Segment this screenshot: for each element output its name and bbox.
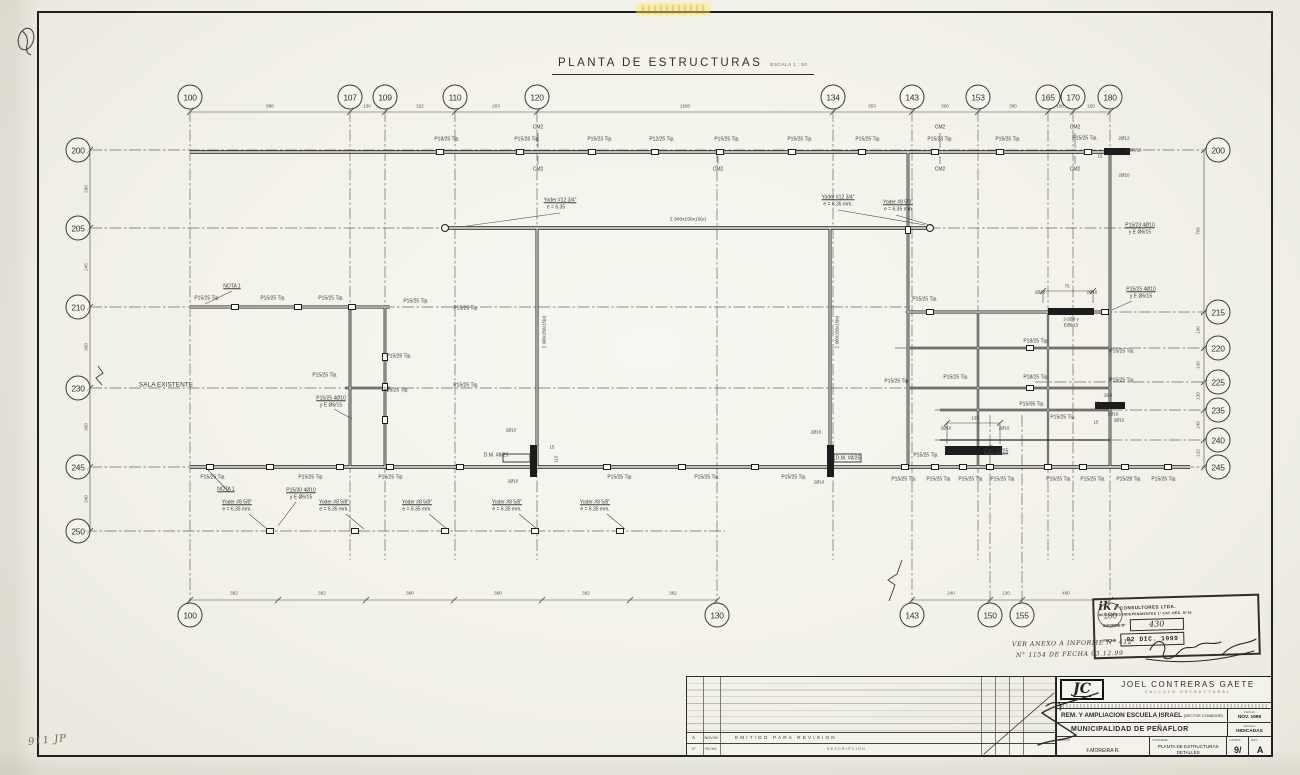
jc-logo-text: JC (1073, 682, 1091, 697)
title-block-firm-row: JC JOEL CONTRERAS GAETE CALCULO ESTRUCTU… (1057, 677, 1271, 703)
contiene-value-1: PLANTA DE ESTRUCTURAS (1158, 744, 1219, 749)
lamina-value: 9/ (1227, 745, 1248, 755)
client-name: MUNICIPALIDAD DE PEÑAFLOR (1071, 726, 1189, 733)
stamp-logo-slashes: // (1113, 603, 1118, 612)
revision-table: A NOV.99 EMITIDO PARA REVISION N° FECHA … (686, 676, 1056, 756)
contiene-cell: CONTIENE PLANTA DE ESTRUCTURASDETALLES (1150, 737, 1227, 757)
project-name: REM. Y AMPLIACION ESCUELA ISRAEL (1061, 712, 1182, 719)
firm-subtitle: CALCULO ESTRUCTURAL (1107, 690, 1269, 694)
revision-date: NOV.99 (705, 736, 718, 740)
revision-row-divider (687, 732, 1055, 733)
project-row-1: REM. Y AMPLIACION ESCUELA ISRAEL (SECTOR… (1057, 708, 1271, 722)
firm-address-microtext (1059, 704, 1269, 708)
escala-label: ESCALA (1228, 724, 1271, 728)
highlighter-smear (636, 3, 710, 17)
escala-cell: ESCALA INDICADAS (1227, 723, 1271, 736)
dibujo-cell: DIBUJO F.MOREIRA R. (1057, 737, 1150, 757)
title-block: JC JOEL CONTRERAS GAETE CALCULO ESTRUCTU… (1056, 676, 1272, 756)
fecha-label: FECHA (1228, 710, 1271, 714)
rev-cell: REV. A (1249, 737, 1271, 757)
firm-name: JOEL CONTRERAS GAETE (1107, 680, 1269, 689)
escala-value: INDICADAS (1228, 729, 1271, 734)
fecha-value: NOV. 1999 (1228, 715, 1271, 720)
fecha-cell: FECHA NOV. 1999 (1227, 709, 1271, 722)
revision-rev-letter: A (692, 735, 695, 740)
dibujo-value: F.MOREIRA R. (1057, 748, 1149, 754)
blueprint-sheet: PLANTA DE ESTRUCTURASESCALA 1 : 50 10010… (0, 0, 1300, 775)
lamina-label: LAMINA (1229, 738, 1240, 742)
title-block-bottom-row: DIBUJO F.MOREIRA R. CONTIENE PLANTA DE E… (1057, 736, 1271, 757)
sheet-blocks-layer: A NOV.99 EMITIDO PARA REVISION N° FECHA … (0, 0, 1300, 775)
revision-header-fecha: FECHA (705, 747, 717, 751)
jc-logo: JC (1060, 679, 1104, 700)
revision-description: EMITIDO PARA REVISION (735, 735, 837, 740)
lamina-cell: LAMINA 9/ (1227, 737, 1249, 757)
revision-row-divider (687, 743, 1055, 744)
firm-identity: JOEL CONTRERAS GAETE CALCULO ESTRUCTURAL (1107, 680, 1269, 694)
rev-value: A (1249, 745, 1271, 755)
rev-label: REV. (1251, 738, 1258, 742)
stamp-informe-label: INFORME N° (1103, 623, 1126, 628)
stamp-informe-number: 430 (1130, 618, 1184, 632)
project-sector: (SECTOR COMEDOR) (1184, 714, 1223, 718)
contiene-label: CONTIENE (1152, 738, 1168, 742)
project-row-2: MUNICIPALIDAD DE PEÑAFLOR ESCALA INDICAD… (1057, 722, 1271, 736)
revision-header-no: N° (692, 747, 696, 751)
stamp-logo: ik (1098, 602, 1111, 612)
dibujo-label: DIBUJO (1059, 738, 1070, 742)
revision-header-desc: DESCRIPCION (827, 747, 866, 751)
contiene-value-2: DETALLES (1177, 750, 1200, 755)
